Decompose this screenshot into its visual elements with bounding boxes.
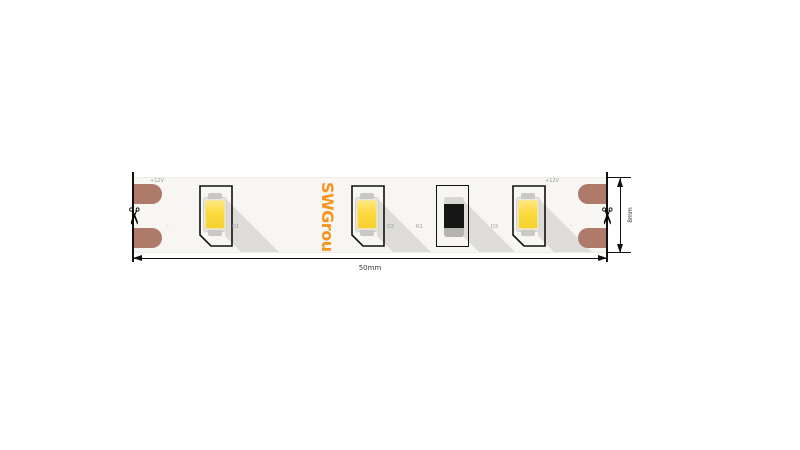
dim-label-8mm: 8mm bbox=[626, 200, 636, 230]
led-electrode-bottom bbox=[521, 230, 535, 236]
scissors-right-icon: ✂ bbox=[592, 203, 620, 229]
dim-arrow-left-icon bbox=[133, 255, 142, 261]
component-label-r1: R1 bbox=[416, 225, 423, 230]
dim-arrow-right-icon bbox=[598, 255, 607, 261]
led-electrode-bottom bbox=[360, 230, 374, 236]
minus-label-right: - bbox=[570, 224, 572, 229]
dim-arrow-down-icon bbox=[617, 244, 623, 253]
led2-body bbox=[355, 193, 379, 236]
dim-line-8mm bbox=[620, 178, 621, 253]
copper-pad-bottom-left bbox=[133, 228, 162, 248]
led-phosphor bbox=[357, 200, 377, 229]
dim-arrow-up-icon bbox=[617, 178, 623, 187]
led-electrode-top bbox=[208, 193, 222, 199]
led-electrode-bottom bbox=[208, 230, 222, 236]
resistor-body bbox=[444, 197, 464, 237]
led2-shadow bbox=[377, 198, 435, 253]
led1-body bbox=[203, 193, 227, 236]
minus-label-left: - bbox=[167, 224, 169, 229]
plus12v-label-right: +12V bbox=[545, 179, 559, 184]
component-label-d1: D1 bbox=[232, 225, 239, 230]
led-electrode-top bbox=[521, 193, 535, 199]
led-electrode-top bbox=[360, 193, 374, 199]
led3-body bbox=[516, 193, 540, 236]
component-label-d2: D2 bbox=[387, 225, 394, 230]
brand-logo: SWGroup bbox=[318, 182, 336, 253]
dim-line-50mm bbox=[133, 258, 607, 259]
led-strip-segment: +12V - +12V - SWGroup bbox=[133, 177, 607, 253]
dim-label-50mm: 50mm bbox=[133, 264, 607, 272]
component-label-d3: D3 bbox=[491, 225, 498, 230]
copper-pad-bottom-right bbox=[578, 228, 607, 248]
led-phosphor bbox=[518, 200, 538, 229]
scissors-left-icon: ✂ bbox=[119, 203, 147, 229]
led-strip-diagram: +12V - +12V - SWGroup bbox=[0, 0, 800, 450]
resistor-cap-bottom bbox=[444, 228, 464, 237]
copper-pad-top-right bbox=[578, 184, 607, 204]
plus12v-label-left: +12V bbox=[150, 179, 164, 184]
copper-pad-top-left bbox=[133, 184, 162, 204]
resistor-black-body bbox=[444, 204, 464, 228]
led-phosphor bbox=[205, 200, 225, 229]
